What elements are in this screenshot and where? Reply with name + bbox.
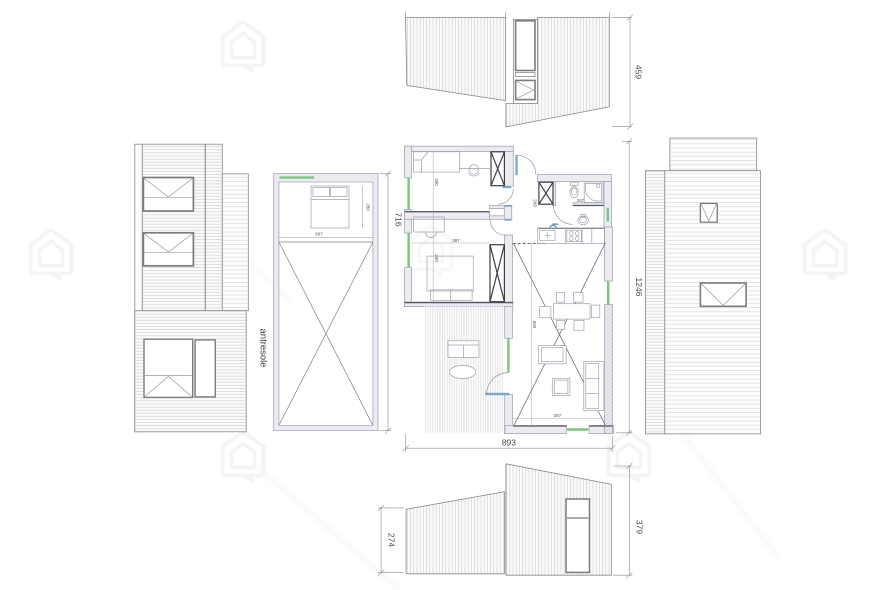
svg-text:379: 379 — [634, 520, 644, 534]
svg-text:600: 600 — [532, 321, 537, 329]
svg-text:274: 274 — [386, 533, 396, 547]
svg-text:893: 893 — [502, 438, 516, 448]
svg-text:567: 567 — [315, 232, 323, 237]
svg-text:280: 280 — [366, 203, 371, 211]
svg-text:antresole: antresole — [258, 329, 269, 368]
svg-text:459: 459 — [634, 65, 644, 79]
svg-text:716: 716 — [393, 212, 403, 226]
svg-text:380: 380 — [434, 254, 439, 262]
svg-text:387: 387 — [554, 413, 562, 418]
svg-text:260: 260 — [532, 199, 537, 207]
svg-text:380: 380 — [434, 178, 439, 186]
svg-text:387: 387 — [452, 238, 460, 243]
svg-text:1246: 1246 — [634, 278, 644, 297]
svg-text:267: 267 — [577, 198, 585, 203]
